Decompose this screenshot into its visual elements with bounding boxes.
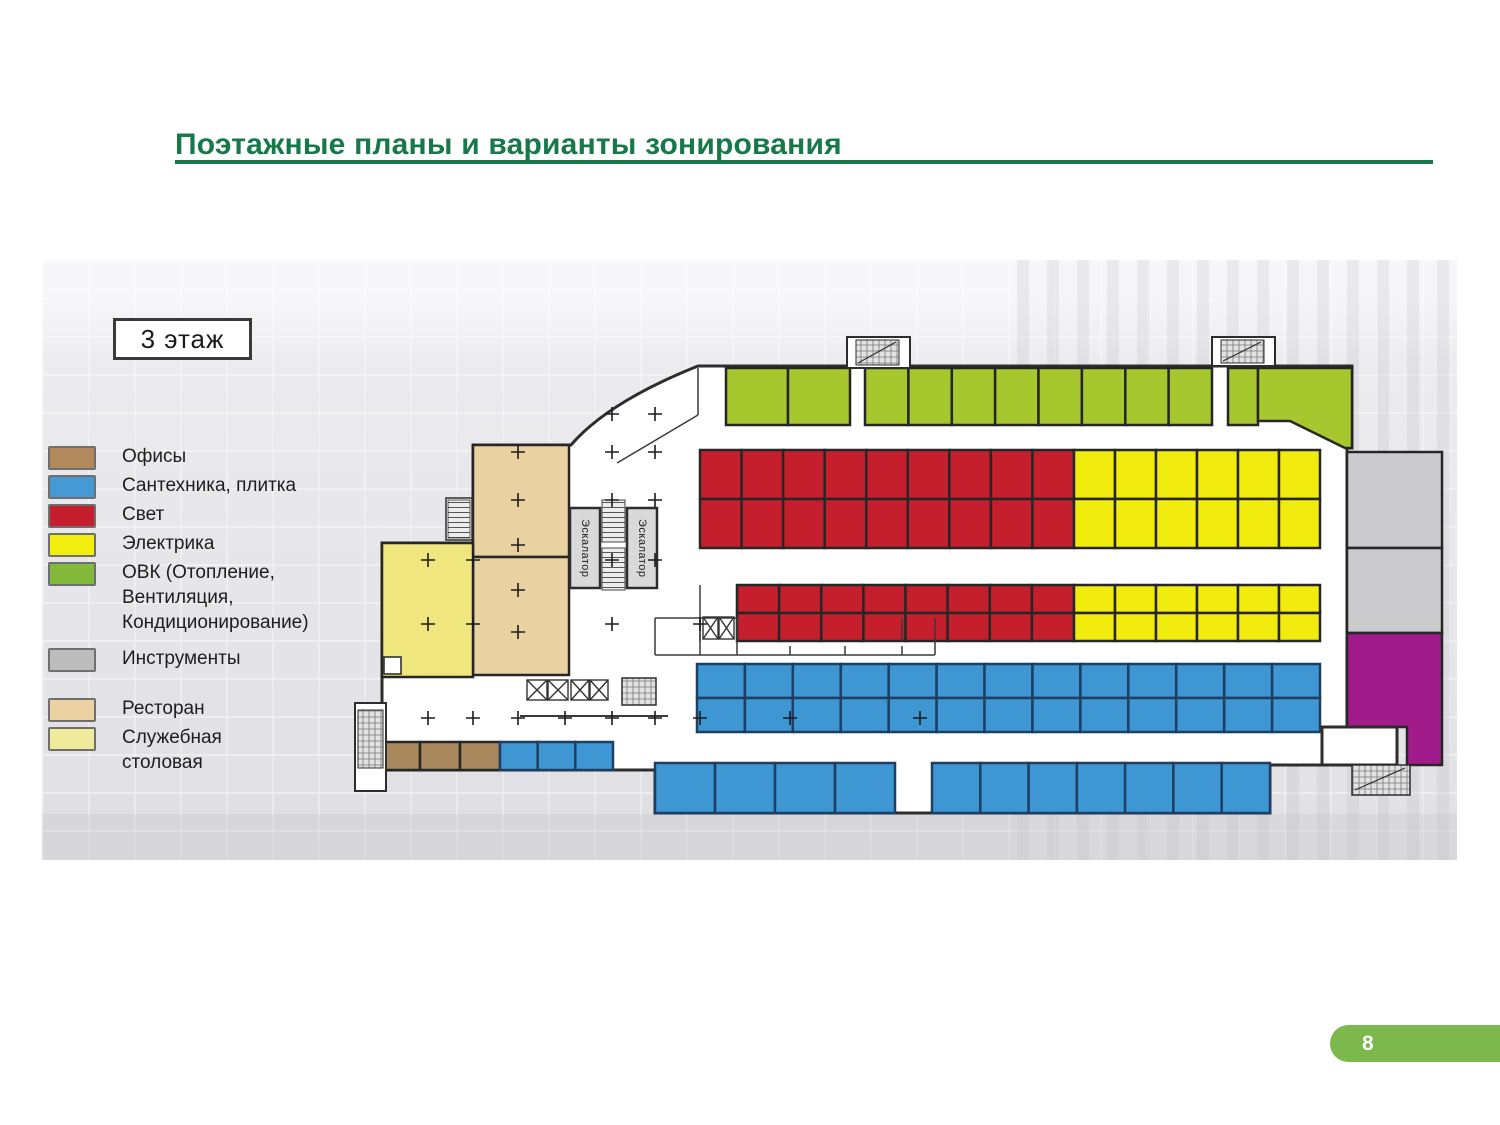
legend-item-tools: Инструменты [48,646,348,672]
legend-item-hvac: ОВК (Отопление, Вентиляция, Кондициониро… [48,560,348,635]
legend-label: Служебная столовая [122,725,222,775]
floor-label: 3 этаж [113,318,252,360]
legend-swatch-canteen [48,727,96,751]
page-number: 8 [1362,1032,1374,1056]
legend-label: Сантехника, плитка [122,473,296,498]
legend-swatch-light [48,504,96,528]
legend-label: Ресторан [122,696,205,721]
escalator-label-2: Эскалатор [627,508,657,588]
legend-item-plumbing: Сантехника, плитка [48,473,348,499]
legend-item-offices: Офисы [48,444,348,470]
legend-label: Электрика [122,531,214,556]
legend-label: ОВК (Отопление, Вентиляция, Кондициониро… [122,560,309,635]
legend-item-canteen: Служебная столовая [48,725,348,775]
slide: Поэтажные планы и варианты зонирования [0,0,1500,1125]
legend-swatch-tools [48,648,96,672]
escalator-label-1: Эскалатор [570,508,600,588]
legend-label: Инструменты [122,646,240,671]
legend-item-electrics: Электрика [48,531,348,557]
backdrop-shadow-strip [42,814,1457,860]
legend-swatch-offices [48,446,96,470]
legend-swatch-restaurant [48,698,96,722]
legend-item-light: Свет [48,502,348,528]
legend-item-restaurant: Ресторан [48,696,348,722]
legend-label: Свет [122,502,164,527]
legend-swatch-electrics [48,533,96,557]
page-title: Поэтажные планы и варианты зонирования [175,128,842,162]
legend-label: Офисы [122,444,186,469]
page-number-badge: 8 [1330,1025,1500,1062]
legend: ОфисыСантехника, плиткаСветЭлектрикаОВК … [48,444,348,778]
legend-swatch-hvac [48,562,96,586]
legend-swatch-plumbing [48,475,96,499]
backdrop-building-photo [1017,260,1457,860]
title-underline [175,160,1433,164]
